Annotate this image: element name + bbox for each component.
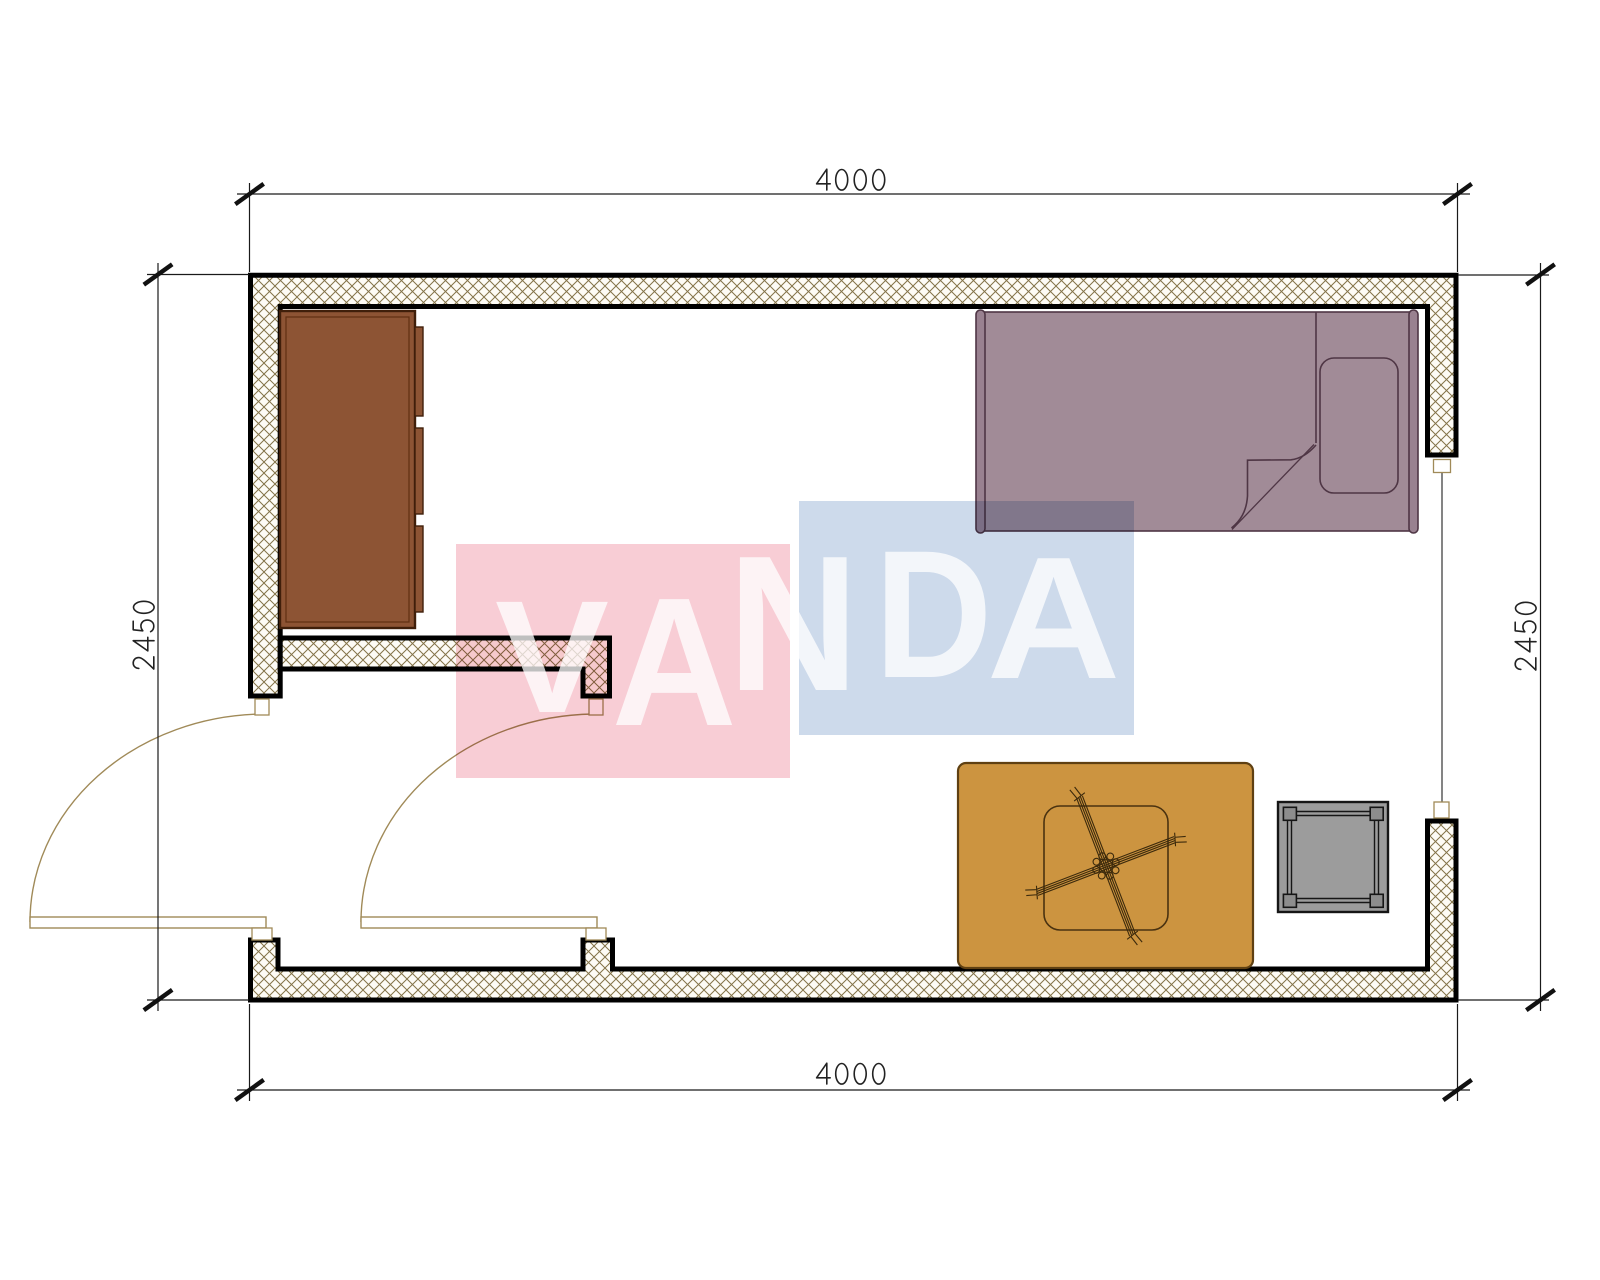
- svg-text:A: A: [612, 559, 737, 764]
- svg-text:D: D: [874, 512, 992, 716]
- svg-text:V: V: [495, 567, 609, 746]
- svg-text:A: A: [987, 520, 1121, 715]
- svg-text:N: N: [728, 515, 859, 731]
